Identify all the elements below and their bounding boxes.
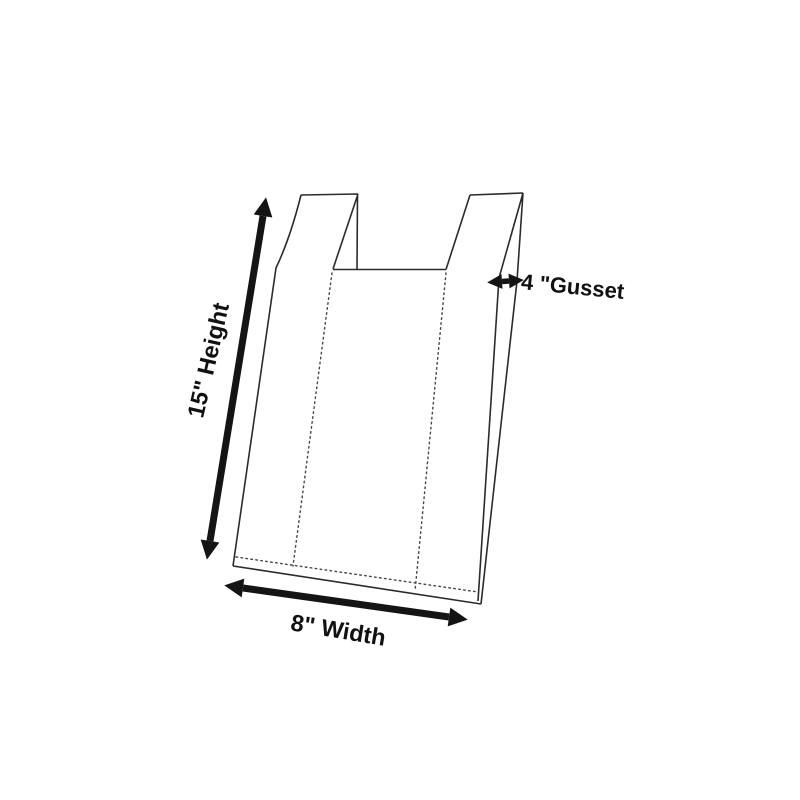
right-gusset-fold-line <box>415 273 446 591</box>
height-dimension: 15" Height <box>182 216 263 541</box>
width-dimension: 8" Width <box>243 588 449 651</box>
bag-illustration <box>233 193 523 604</box>
gusset-label: 4 "Gusset <box>520 269 626 304</box>
gusset-arrow <box>502 281 509 282</box>
width-arrow <box>243 588 449 617</box>
left-gusset-fold-line <box>293 273 332 566</box>
bag-outline <box>233 193 523 604</box>
height-label: 15" Height <box>182 300 234 420</box>
width-label: 8" Width <box>289 609 388 650</box>
bottom-fold-line <box>236 557 478 592</box>
diagram-canvas: 15" Height 8" Width 4 "Gusset <box>0 0 800 800</box>
height-arrow <box>210 216 263 541</box>
bag-dimension-diagram: 15" Height 8" Width 4 "Gusset <box>0 0 800 800</box>
gusset-dimension: 4 "Gusset <box>502 269 626 304</box>
